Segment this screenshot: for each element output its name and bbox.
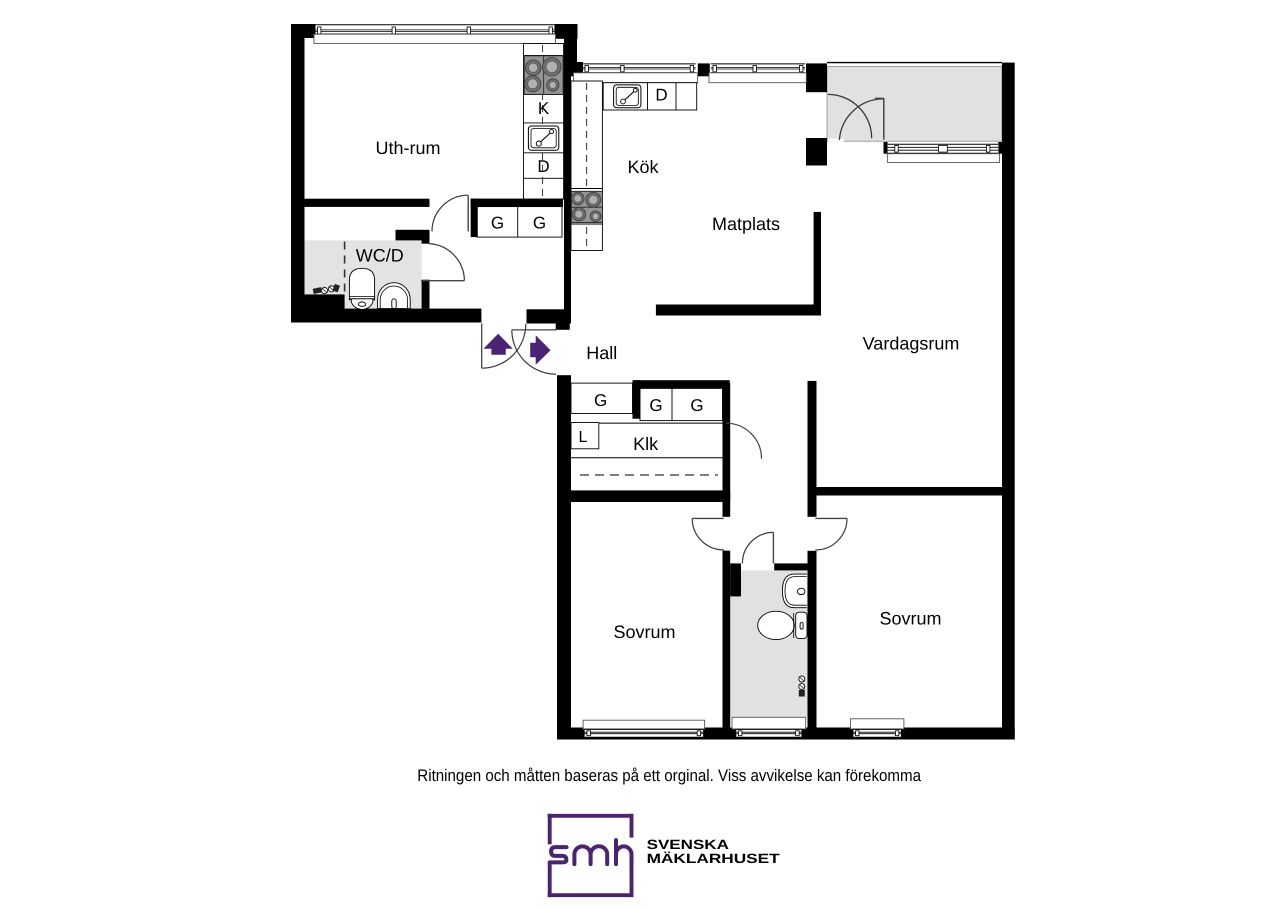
svg-text:G: G (594, 391, 607, 410)
svg-text:Ritningen och måtten baseras p: Ritningen och måtten baseras på ett orgi… (417, 766, 921, 785)
svg-text:G: G (491, 214, 504, 233)
svg-text:Kök: Kök (627, 157, 659, 177)
svg-text:L: L (579, 429, 588, 446)
svg-text:Vardagsrum: Vardagsrum (863, 334, 960, 354)
svg-text:Sovrum: Sovrum (613, 622, 675, 642)
svg-text:WC/D: WC/D (356, 246, 404, 266)
svg-text:G: G (649, 396, 662, 415)
svg-text:Matplats: Matplats (712, 214, 780, 234)
svg-text:Sovrum: Sovrum (879, 609, 941, 629)
svg-text:Uth-rum: Uth-rum (375, 138, 440, 158)
svg-text:G: G (533, 214, 546, 233)
svg-text:D: D (537, 157, 549, 176)
svg-text:Hall: Hall (586, 343, 617, 363)
svg-text:D: D (655, 86, 667, 105)
svg-text:MÄKLARHUSET: MÄKLARHUSET (647, 851, 781, 866)
svg-text:SVENSKA: SVENSKA (647, 837, 730, 852)
svg-text:K: K (538, 99, 550, 118)
svg-text:G: G (690, 396, 703, 415)
svg-text:Klk: Klk (633, 434, 659, 454)
